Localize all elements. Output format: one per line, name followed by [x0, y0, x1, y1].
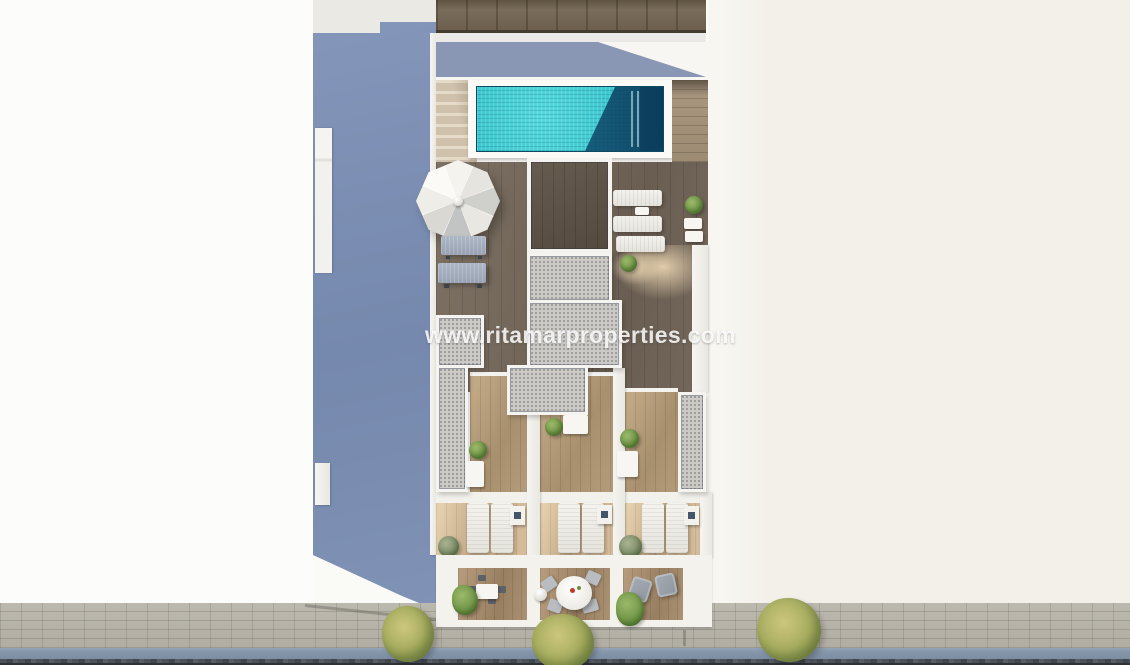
- sun-lounger: [613, 190, 662, 206]
- street-tree: [757, 598, 821, 662]
- building: [430, 0, 712, 627]
- table-item-red: [570, 588, 575, 593]
- sun-lounger: [613, 216, 662, 232]
- swimming-pool: [468, 80, 672, 158]
- parasol: [416, 160, 500, 242]
- street-shrub: [616, 592, 644, 626]
- terrace-table: [466, 461, 484, 487]
- patio-chair: [684, 218, 702, 229]
- parasol-pole: [453, 196, 463, 206]
- sun-lounger: [467, 503, 489, 553]
- sphere-lamp: [534, 588, 547, 601]
- background-right: [708, 0, 1130, 603]
- sun-lounger-shaded: [438, 263, 486, 283]
- potted-plant: [469, 441, 487, 459]
- neighboring-roof: [436, 0, 706, 33]
- potted-plant: [620, 429, 639, 448]
- pool-shadow-overlay: [477, 87, 663, 151]
- sun-lounger: [642, 503, 664, 553]
- potted-plant: [685, 196, 703, 214]
- street-tree: [532, 614, 594, 665]
- balcony-chair: [498, 586, 506, 593]
- stairwell-roof-center: [507, 365, 588, 415]
- pool-dark-end: [640, 87, 663, 151]
- pool-water: [476, 86, 664, 152]
- pool-ladder-rail: [637, 91, 639, 147]
- potted-plant: [545, 418, 563, 436]
- storage-box: [510, 506, 525, 525]
- table-item-green: [577, 586, 581, 590]
- lounger-leg: [477, 284, 482, 288]
- watermark: www.ritamarproperties.com: [425, 320, 715, 350]
- potted-plant: [620, 255, 637, 272]
- stairwell-roof-center: [527, 253, 612, 303]
- balcony-table: [476, 584, 498, 599]
- sunken-courtyard: [527, 158, 612, 253]
- pool-side-decking: [672, 80, 708, 162]
- right-wall: [700, 492, 712, 557]
- terrace-table: [563, 415, 588, 434]
- side-table: [635, 207, 649, 215]
- balcony-armchair: [654, 572, 678, 598]
- pool-ladder-rail: [631, 91, 633, 147]
- balcony-round-table: [556, 576, 592, 610]
- parapet-band: [436, 33, 706, 42]
- storage-box: [597, 505, 612, 524]
- render-canvas: www.ritamarproperties.com: [0, 0, 1130, 665]
- potted-plant: [438, 536, 459, 557]
- sun-lounger-shaded: [441, 236, 486, 255]
- balcony-plant: [452, 585, 478, 615]
- terrace-parapet: [436, 492, 700, 503]
- stairwell-roof-left: [436, 365, 468, 492]
- storage-box: [684, 506, 699, 525]
- upper-right-wall: [692, 245, 708, 392]
- lounger-leg: [444, 284, 449, 288]
- sun-lounger: [558, 503, 580, 553]
- shaded-side-wall: [313, 22, 436, 612]
- lounger-leg: [446, 256, 450, 259]
- stairwell-roof-right: [678, 392, 706, 492]
- street-tree: [382, 606, 434, 662]
- lounger-leg: [478, 256, 482, 259]
- wall-pillar: [315, 128, 332, 273]
- terrace-table: [617, 451, 638, 477]
- patio-chair: [685, 231, 703, 242]
- drainpipe-shadow: [683, 630, 686, 646]
- wall-segment-lower: [315, 463, 330, 505]
- balcony-chair: [478, 575, 486, 581]
